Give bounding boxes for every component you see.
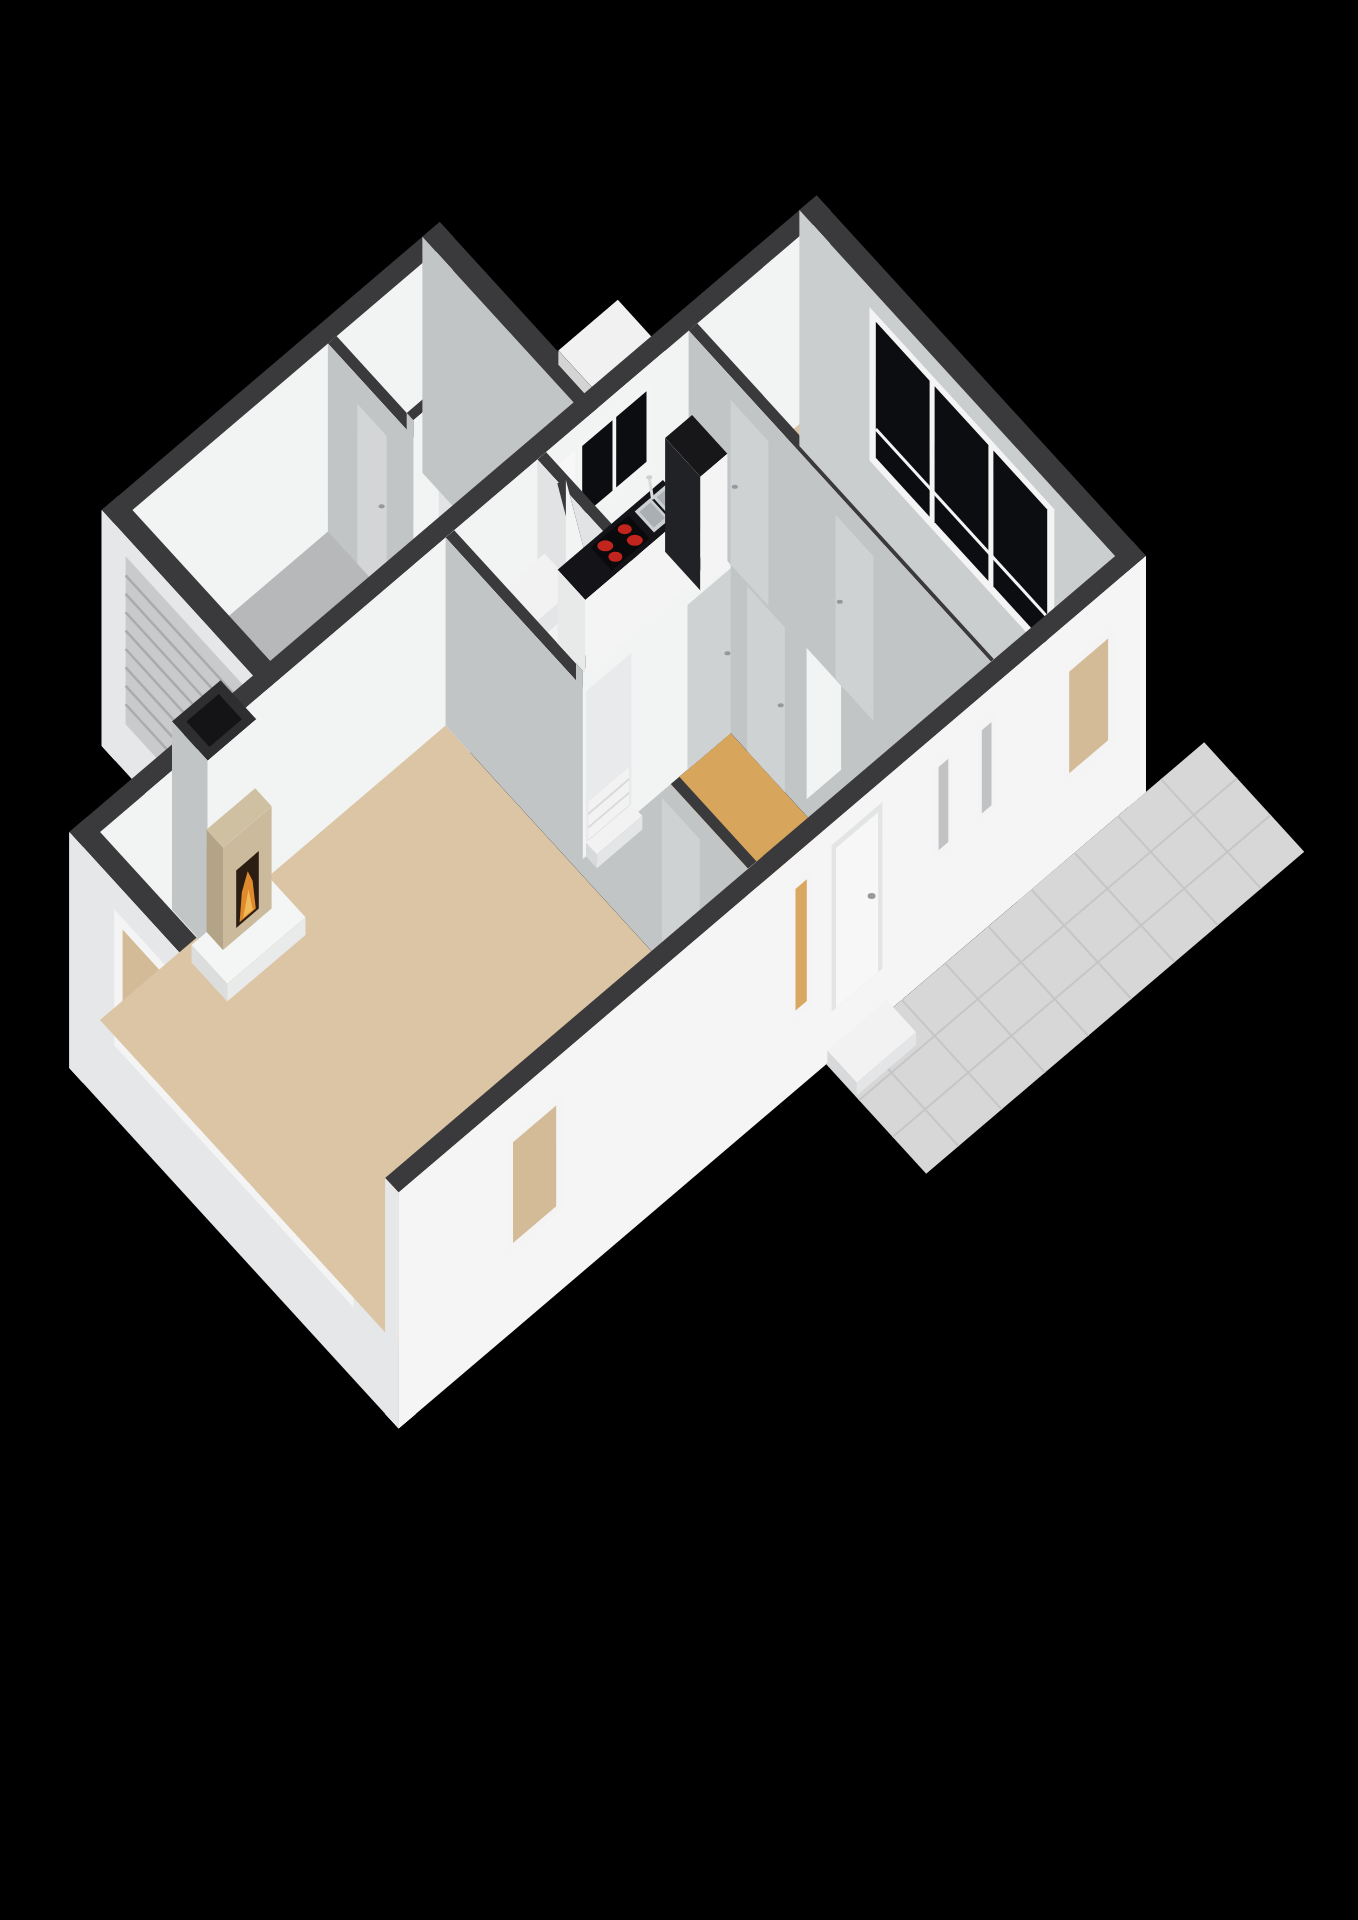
kitchen-bedroom-door-handle (732, 485, 738, 489)
toilet-1-window-glass (939, 759, 949, 850)
hall-kitchen-door-handle (724, 651, 730, 655)
fireplace-surround-side (207, 830, 223, 950)
cooktop-burner (618, 524, 632, 534)
hall-corridor-door-handle (778, 703, 784, 707)
front-wall-side (385, 1178, 399, 1429)
floorplan-3d-render (0, 0, 1358, 1920)
chimney-side (172, 722, 208, 949)
screenshot-root (0, 0, 1358, 1920)
hall-sidelight-glass (796, 879, 807, 1010)
toilet-2-window-glass (982, 722, 992, 813)
kitchen-tall-unit-front (700, 454, 727, 591)
cooktop-burner (597, 540, 613, 551)
cooktop-burner (627, 535, 643, 546)
cooktop-burner (608, 552, 622, 562)
front-door-handle (868, 893, 876, 899)
kitchen-faucet-spout (646, 475, 652, 479)
storage-door-handle (379, 504, 385, 508)
hall-north-wall-side (576, 664, 583, 859)
bedroom-door-handle (837, 600, 843, 604)
